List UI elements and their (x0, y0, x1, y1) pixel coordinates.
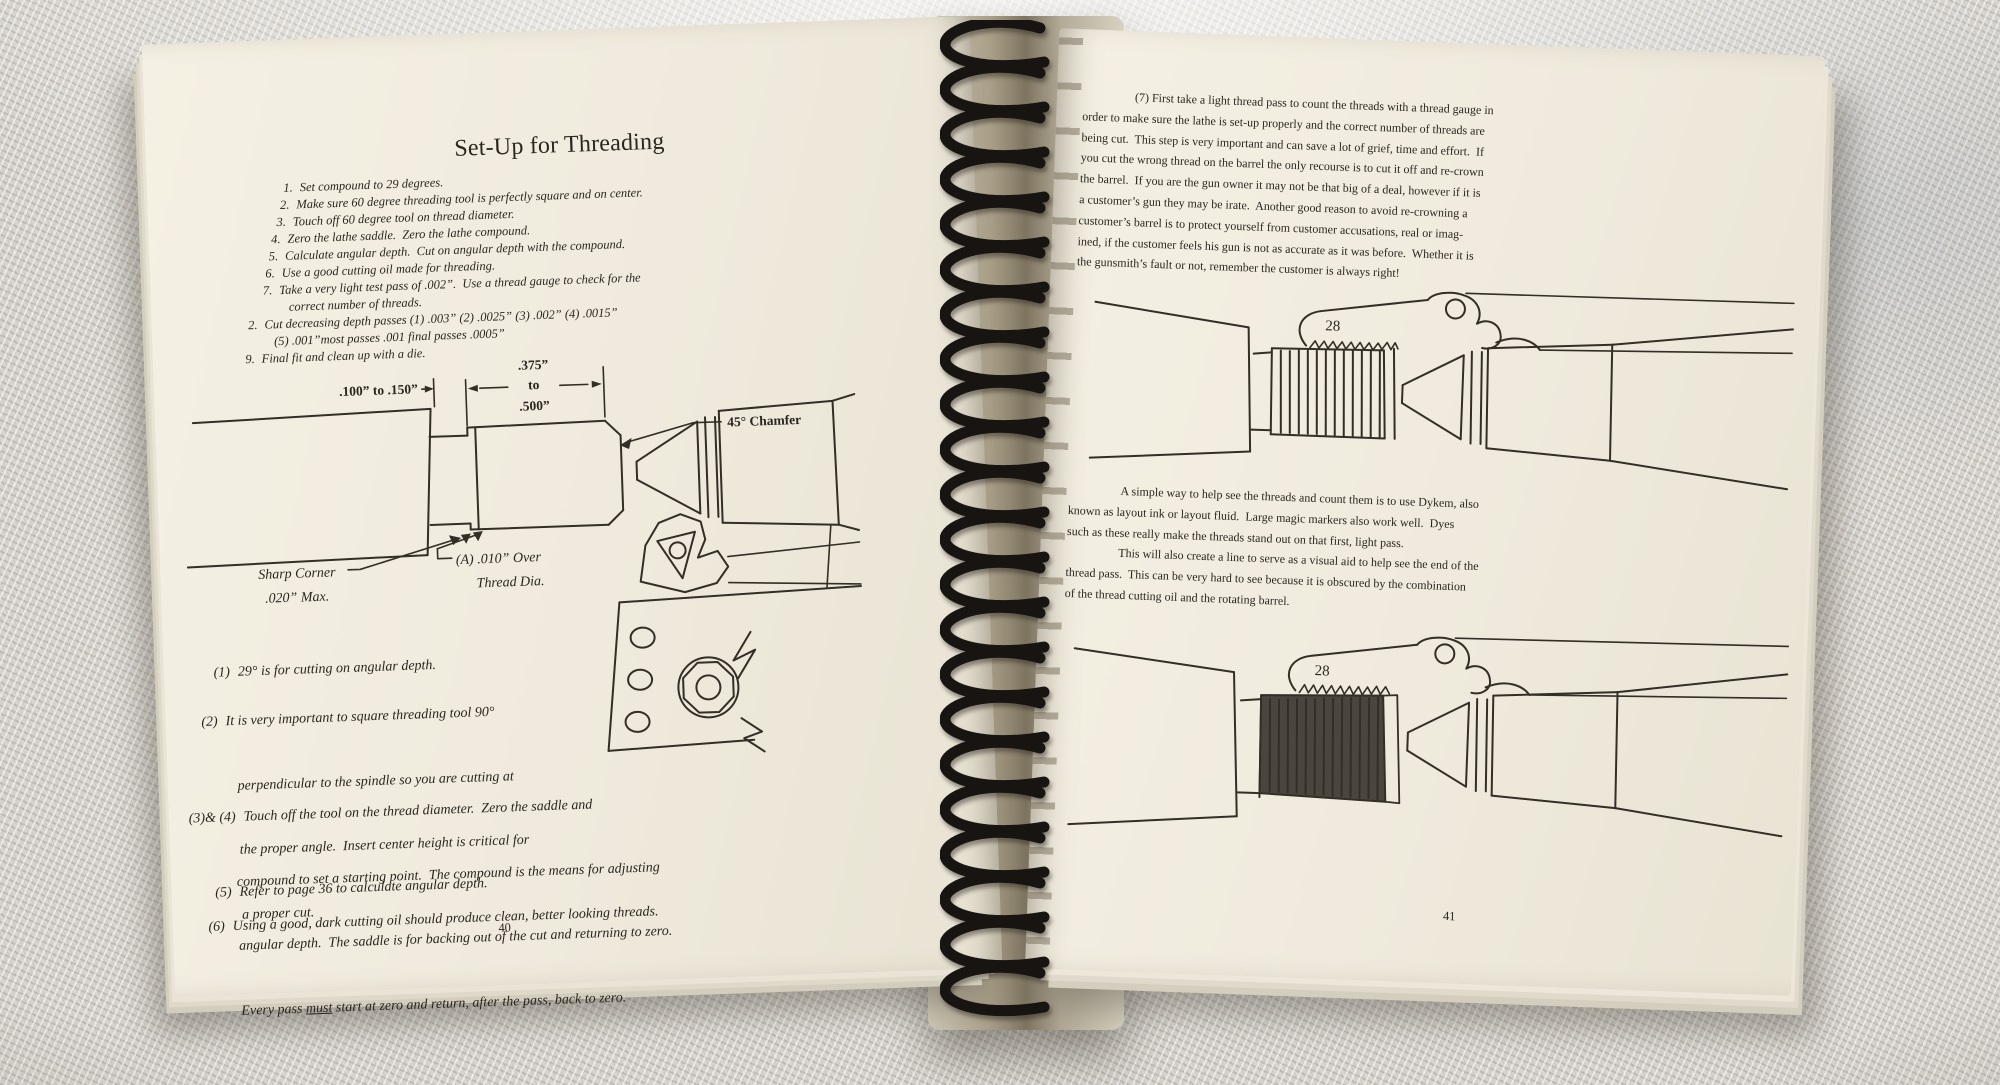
underlined-word: must (306, 1000, 333, 1016)
page-number-40: 40 (464, 919, 544, 937)
gauge-pitch-label: 28 (1325, 318, 1341, 335)
thread-lines (1278, 347, 1383, 439)
left-page: Set-Up for Threading 1.Set compound to 2… (142, 16, 1003, 996)
dim-label-to: to (528, 377, 540, 392)
paragraph-dykem: A simple way to help see the threads and… (1064, 479, 1481, 619)
paragraph-7: (7) First take a light thread pass to co… (1077, 85, 1494, 287)
gauge-pivot-hole (1435, 644, 1455, 664)
chamfer-label: 45° Chamfer (727, 412, 801, 430)
thread-gauge-diagram-inked: 28 (1066, 614, 1789, 865)
right-page: (7) First take a light thread pass to co… (1025, 28, 1825, 995)
photo-of-open-manual: { "left_page": { "title": "Set-Up for Th… (0, 0, 2000, 1085)
gauge-pitch-label: 28 (1314, 663, 1330, 680)
page-title: Set-Up for Threading (145, 118, 973, 174)
dim-label-500: .500” (519, 398, 550, 414)
sharp-corner-label-1: Sharp Corner (258, 565, 336, 583)
sharp-corner-label-2: .020” Max. (265, 590, 330, 607)
gauge-serrations (1299, 684, 1389, 696)
thread-pitch-gauge (1299, 285, 1794, 363)
over-thread-label-2: Thread Dia. (476, 574, 544, 591)
threading-steps-list: 1.Set compound to 29 degrees. 2.Make sur… (250, 167, 648, 368)
spiral-binding-coils (940, 20, 1070, 1030)
page-number-41: 41 (1409, 908, 1489, 926)
threading-tool-holder-drawing (600, 508, 866, 757)
thread-gauge-diagram-clean: 28 (1087, 278, 1794, 499)
gauge-pivot-hole (1446, 299, 1466, 319)
dim-label-375: .375” (518, 357, 549, 373)
over-thread-label-1: (A) .010” Over (456, 550, 542, 568)
dim-label-shoulder: .100” to .150” (339, 381, 418, 399)
